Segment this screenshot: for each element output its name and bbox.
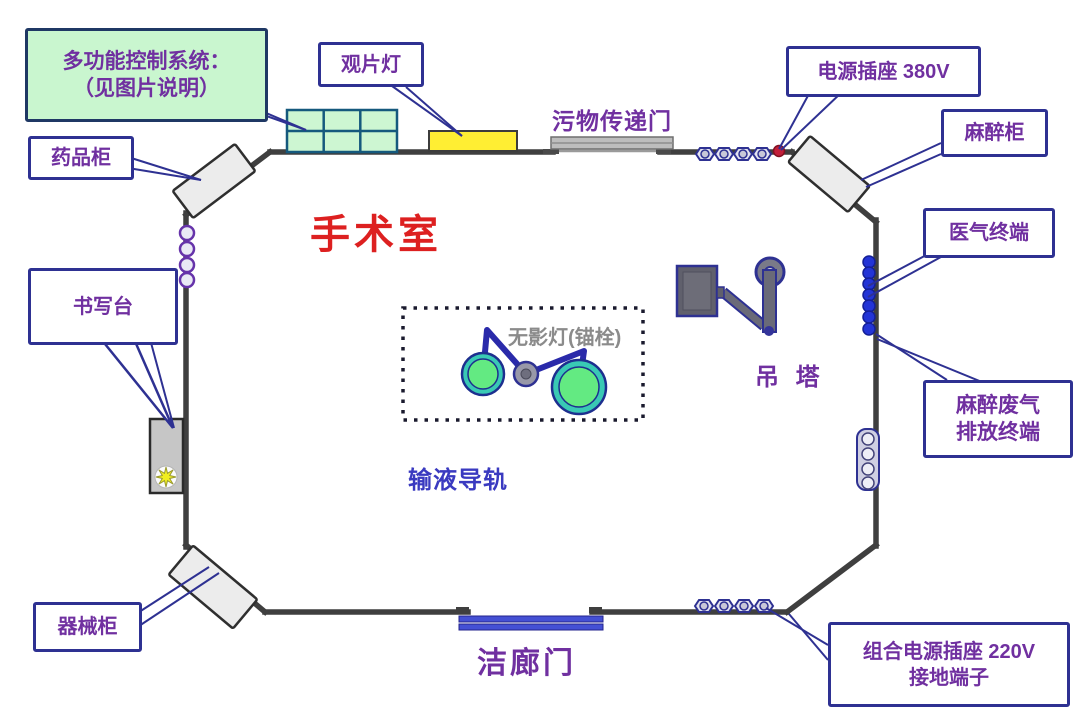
operating-room-layout-diagram: 多功能控制系统： （见图片说明） 观片灯 药品柜 电源插座 380V 麻醉柜 医…: [0, 0, 1080, 716]
medical-gas-terminal-label: 医气终端: [923, 208, 1055, 258]
right-wall-socket-strip: [857, 429, 879, 490]
combo-socket-line1: 组合电源插座 220V: [863, 639, 1035, 665]
anesthesia-waste-gas-line1: 麻醉废气: [956, 392, 1040, 419]
anesthesia-waste-gas-label: 麻醉废气 排放终端: [923, 380, 1073, 458]
shadowless-lamp-label: 无影灯(锚栓): [508, 321, 621, 350]
writing-desk-label: 书写台: [28, 268, 178, 345]
instrument-cabinet-label: 器械柜: [33, 602, 142, 652]
waste-transfer-door-label: 污物传递门: [552, 102, 672, 136]
ceiling-pendant-label: 吊 塔: [755, 357, 825, 392]
instrument-cabinet-shape: [169, 545, 258, 628]
anesthesia-cabinet-shape: [788, 136, 870, 212]
film-lamp-label: 观片灯: [318, 42, 424, 87]
film-lamp-shape: [429, 131, 517, 151]
medicine-cabinet-label: 药品柜: [28, 136, 134, 180]
clean-corridor-door-label: 洁廊门: [477, 638, 576, 682]
room-title: 手术室: [310, 202, 442, 260]
control-system-panel-shape: [287, 110, 397, 152]
clean-corridor-door-shape: [456, 607, 603, 630]
writing-desk-shape: [150, 419, 183, 493]
desk-lamp-star-icon: [156, 467, 176, 487]
left-wall-terminals: [180, 226, 194, 287]
anesthesia-waste-gas-line2: 排放终端: [956, 419, 1040, 446]
combo-socket-line2: 接地端子: [909, 665, 989, 691]
anesthesia-cabinet-label: 麻醉柜: [941, 109, 1048, 157]
control-system-line1: 多功能控制系统：: [63, 48, 231, 75]
ceiling-pendant-shape: [677, 258, 784, 336]
medicine-cabinet-shape: [173, 144, 256, 218]
infusion-rail-label: 输液导轨: [408, 460, 508, 495]
control-system-line2: （见图片说明）: [73, 75, 220, 102]
power-socket-380v-label: 电源插座 380V: [786, 46, 981, 97]
combo-socket-label: 组合电源插座 220V 接地端子: [828, 622, 1070, 707]
control-system-label: 多功能控制系统： （见图片说明）: [25, 28, 268, 122]
